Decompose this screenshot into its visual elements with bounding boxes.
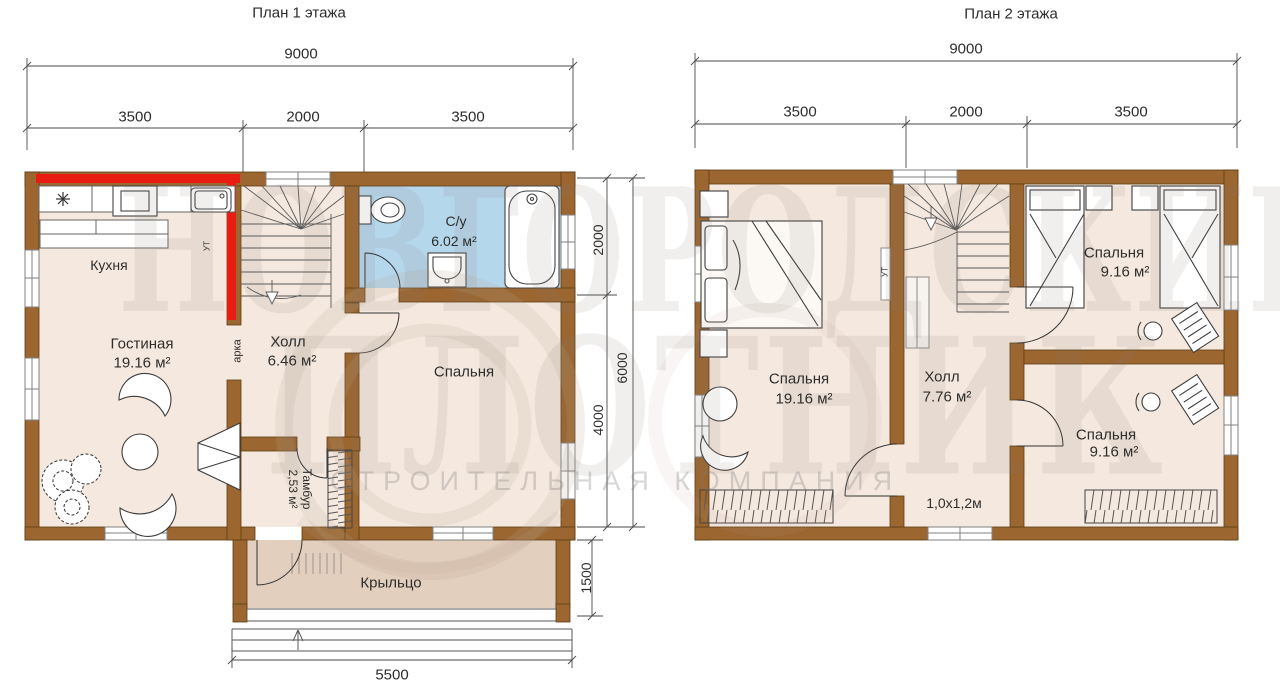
room-area-hall1: 6.46 м² xyxy=(268,352,317,369)
floor2-dim-2000-mid: 2000 xyxy=(949,103,982,120)
room-label-bedroom-bottom: Спальня xyxy=(1076,426,1136,443)
room-area-bathroom: 6.02 м² xyxy=(431,233,476,249)
floor1-dim-2000-mid: 2000 xyxy=(286,108,319,125)
floor1-dim-2000-side: 2000 xyxy=(590,224,606,255)
floor1-dim-3500-right: 3500 xyxy=(451,108,484,125)
floor1-dim-6000-side: 6000 xyxy=(614,352,630,383)
room-area-bedroom-top: 9.16 м² xyxy=(1101,263,1150,280)
floor-plan-sheet: НОВГОРОДСКИЙ ПЛОТНИК СТРОИТЕЛЬНАЯ КОМПАН… xyxy=(0,0,1280,699)
burner-icon xyxy=(56,192,70,206)
floor1-ut-marker: УТ xyxy=(202,241,211,251)
porch-steps xyxy=(232,609,572,651)
floor1-dim-9000: 9000 xyxy=(284,45,317,62)
toilet-icon xyxy=(359,196,405,224)
floor1-dim-5500-bottom: 5500 xyxy=(375,666,408,683)
floor1-dim-1500-porch: 1500 xyxy=(578,562,594,593)
room-label-bedroom-main: Спальня xyxy=(769,370,829,387)
room-label-porch: Крыльцо xyxy=(360,574,421,591)
room-label-bedroom-top: Спальня xyxy=(1084,244,1144,261)
room-area-hall2: 7.76 м² xyxy=(923,388,972,405)
floor2-ut-marker: УТ xyxy=(880,267,889,277)
window-size-annotation: 1,0х1,2м xyxy=(926,495,982,511)
floor1-dim-4000-side: 4000 xyxy=(590,404,606,435)
room-label-bedroom1: Спальня xyxy=(434,363,494,380)
tambour-area: 2,53 м² xyxy=(286,470,300,509)
floor2-dim-9000: 9000 xyxy=(949,40,982,57)
room-label-hall2: Холл xyxy=(924,368,959,385)
tambour-name: Тамбур xyxy=(300,469,314,510)
room-label-living: Гостиная xyxy=(111,335,174,352)
arch-annotation: арка xyxy=(232,339,245,362)
room-area-bedroom-main: 19.16 м² xyxy=(775,390,832,407)
floor2-dim-3500-left: 3500 xyxy=(783,103,816,120)
room-label-bathroom: С/у xyxy=(446,213,467,229)
floor2-dim-3500-right: 3500 xyxy=(1114,103,1147,120)
floor-plan-drawing xyxy=(0,0,1280,699)
room-area-bedroom-bottom: 9.16 м² xyxy=(1090,443,1139,460)
floor1-dim-3500-left: 3500 xyxy=(118,108,151,125)
floor2-title: План 2 этажа xyxy=(964,5,1058,22)
kitchen-sink-icon xyxy=(191,188,231,212)
room-area-living: 19.16 м² xyxy=(113,354,170,371)
room-label-tambour: Тамбур 2,53 м² xyxy=(285,469,313,510)
stove-icon xyxy=(113,186,157,216)
room-label-hall1: Холл xyxy=(270,333,305,350)
floor1-title: План 1 этажа xyxy=(252,4,346,21)
bathtub-icon xyxy=(505,186,559,288)
room-label-kitchen: Кухня xyxy=(90,257,127,273)
